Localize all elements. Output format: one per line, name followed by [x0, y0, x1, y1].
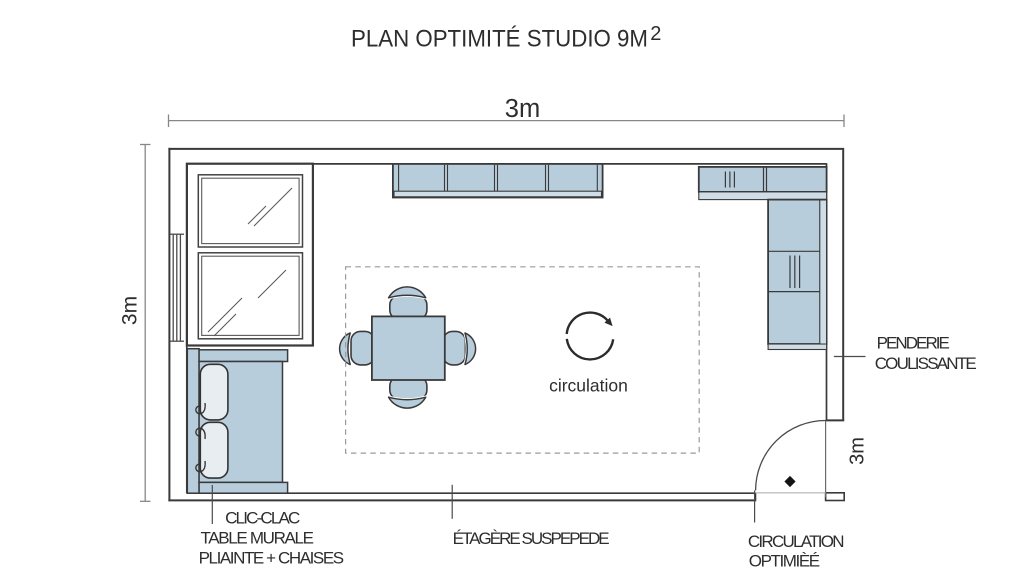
svg-text:PLIAINTE + CHAISES: PLIAINTE + CHAISES — [199, 548, 345, 567]
svg-text:COULISSANTE: COULISSANTE — [875, 354, 977, 373]
svg-text:OPTIMIÈÉ: OPTIMIÈÉ — [749, 551, 820, 570]
svg-text:CLIC-CLAC: CLIC-CLAC — [225, 509, 300, 528]
svg-text:3m: 3m — [505, 95, 540, 123]
svg-text:3m: 3m — [119, 296, 142, 325]
svg-text:circulation: circulation — [549, 376, 628, 396]
svg-text:2: 2 — [650, 23, 661, 45]
svg-text:CIRCULATION: CIRCULATION — [748, 532, 845, 551]
svg-text:PENDERIE: PENDERIE — [877, 334, 950, 353]
svg-text:ÉTAGÈRE SUSPEPEDE: ÉTAGÈRE SUSPEPEDE — [453, 529, 610, 548]
svg-text:TABLE MURALE: TABLE MURALE — [201, 529, 315, 548]
svg-text:PLAN OPTIMITÉ STUDIO 9M: PLAN OPTIMITÉ STUDIO 9M — [351, 25, 648, 52]
svg-text:3m: 3m — [846, 437, 868, 465]
